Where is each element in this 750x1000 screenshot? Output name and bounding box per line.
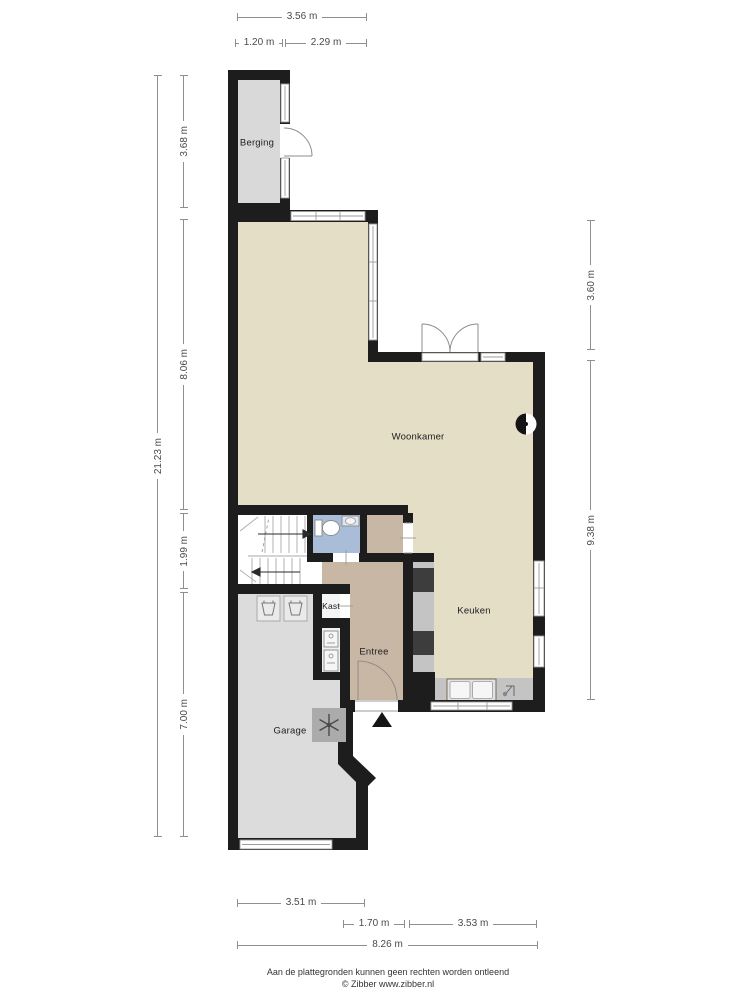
dim-label: 21.23 m <box>153 433 164 479</box>
double-door-sill <box>422 353 478 361</box>
dim-label: 3.53 m <box>453 917 494 931</box>
room-label-keuken: Keuken <box>457 606 490 617</box>
room-label-woonkamer: Woonkamer <box>392 432 445 443</box>
dim-label: 2.29 m <box>306 36 347 50</box>
dim-top-berging: 1.20 m <box>235 36 283 50</box>
dim-left-berging: 3.68 m <box>177 75 191 208</box>
wall-berging-bottom <box>228 203 290 222</box>
dim-label: 7.00 m <box>179 694 190 735</box>
wall-left-outer <box>228 70 238 850</box>
appliance-tall-2 <box>412 631 434 655</box>
wall-bath-bottom <box>307 553 434 562</box>
washing-machine-icon <box>257 596 280 621</box>
dim-bottom-total: 8.26 m <box>237 938 538 952</box>
dim-left-hal: 1.99 m <box>177 513 191 589</box>
dim-label: 1.70 m <box>354 917 395 931</box>
floorplan-drawing <box>0 0 750 1000</box>
room-label-entree: Entree <box>359 647 388 658</box>
dim-label: 8.06 m <box>179 344 190 385</box>
footer-disclaimer: Aan de plattegronden kunnen geen rechten… <box>26 966 750 978</box>
wall-niche-bottom <box>313 672 350 680</box>
dim-label: 9.38 m <box>586 510 597 551</box>
floorplan-page: Berging Woonkamer Keuken Kast Entree Gar… <box>0 0 750 1000</box>
dim-right-lower: 9.38 m <box>584 360 598 700</box>
dim-label: 3.60 m <box>586 265 597 306</box>
double-door-arc-right <box>450 324 478 352</box>
stove-icon <box>516 414 537 435</box>
dim-label: 3.68 m <box>179 121 190 162</box>
wall-stairs-bottom <box>228 584 313 594</box>
dim-left-total: 21.23 m <box>151 75 165 837</box>
stairs-floor <box>238 515 313 584</box>
washing-machine-icon <box>284 596 307 621</box>
dim-label: 1.20 m <box>239 36 280 50</box>
room-label-berging: Berging <box>240 138 274 149</box>
dim-right-upper: 3.60 m <box>584 220 598 350</box>
dim-label: 1.99 m <box>179 531 190 572</box>
dim-left-woonkamer: 8.06 m <box>177 219 191 510</box>
dim-bottom-entree: 1.70 m <box>343 917 405 931</box>
dim-label: 3.56 m <box>282 10 323 24</box>
dim-label: 3.51 m <box>281 896 322 910</box>
footer-credit: © Zibber www.zibber.nl <box>26 978 750 990</box>
dim-top-right: 2.29 m <box>285 36 367 50</box>
toilet-icon <box>315 520 340 536</box>
bath-sink-icon <box>342 516 359 526</box>
room-label-garage: Garage <box>274 726 307 737</box>
footer: Aan de plattegronden kunnen geen rechten… <box>26 966 750 990</box>
wall-kast-left <box>313 584 322 680</box>
meter-cabinet-icon <box>324 631 338 671</box>
appliance-tall-1 <box>412 568 434 592</box>
wall-mid-horizontal <box>228 505 408 515</box>
dim-top-total: 3.56 m <box>237 10 367 24</box>
double-door-arc-left <box>422 324 450 352</box>
wall-kast-bottom <box>322 618 340 628</box>
dim-left-garage: 7.00 m <box>177 592 191 837</box>
ventilation-unit-icon <box>312 708 346 742</box>
room-label-kast: Kast <box>322 601 340 611</box>
dim-bottom-keuken: 3.53 m <box>409 917 537 931</box>
dim-label: 8.26 m <box>367 938 408 952</box>
berging-door-gap <box>280 124 290 158</box>
front-door-gap <box>355 700 398 712</box>
dim-bottom-garage: 3.51 m <box>237 896 365 910</box>
kitchen-sink-icon <box>447 679 496 701</box>
entrance-arrow-icon <box>372 712 392 727</box>
